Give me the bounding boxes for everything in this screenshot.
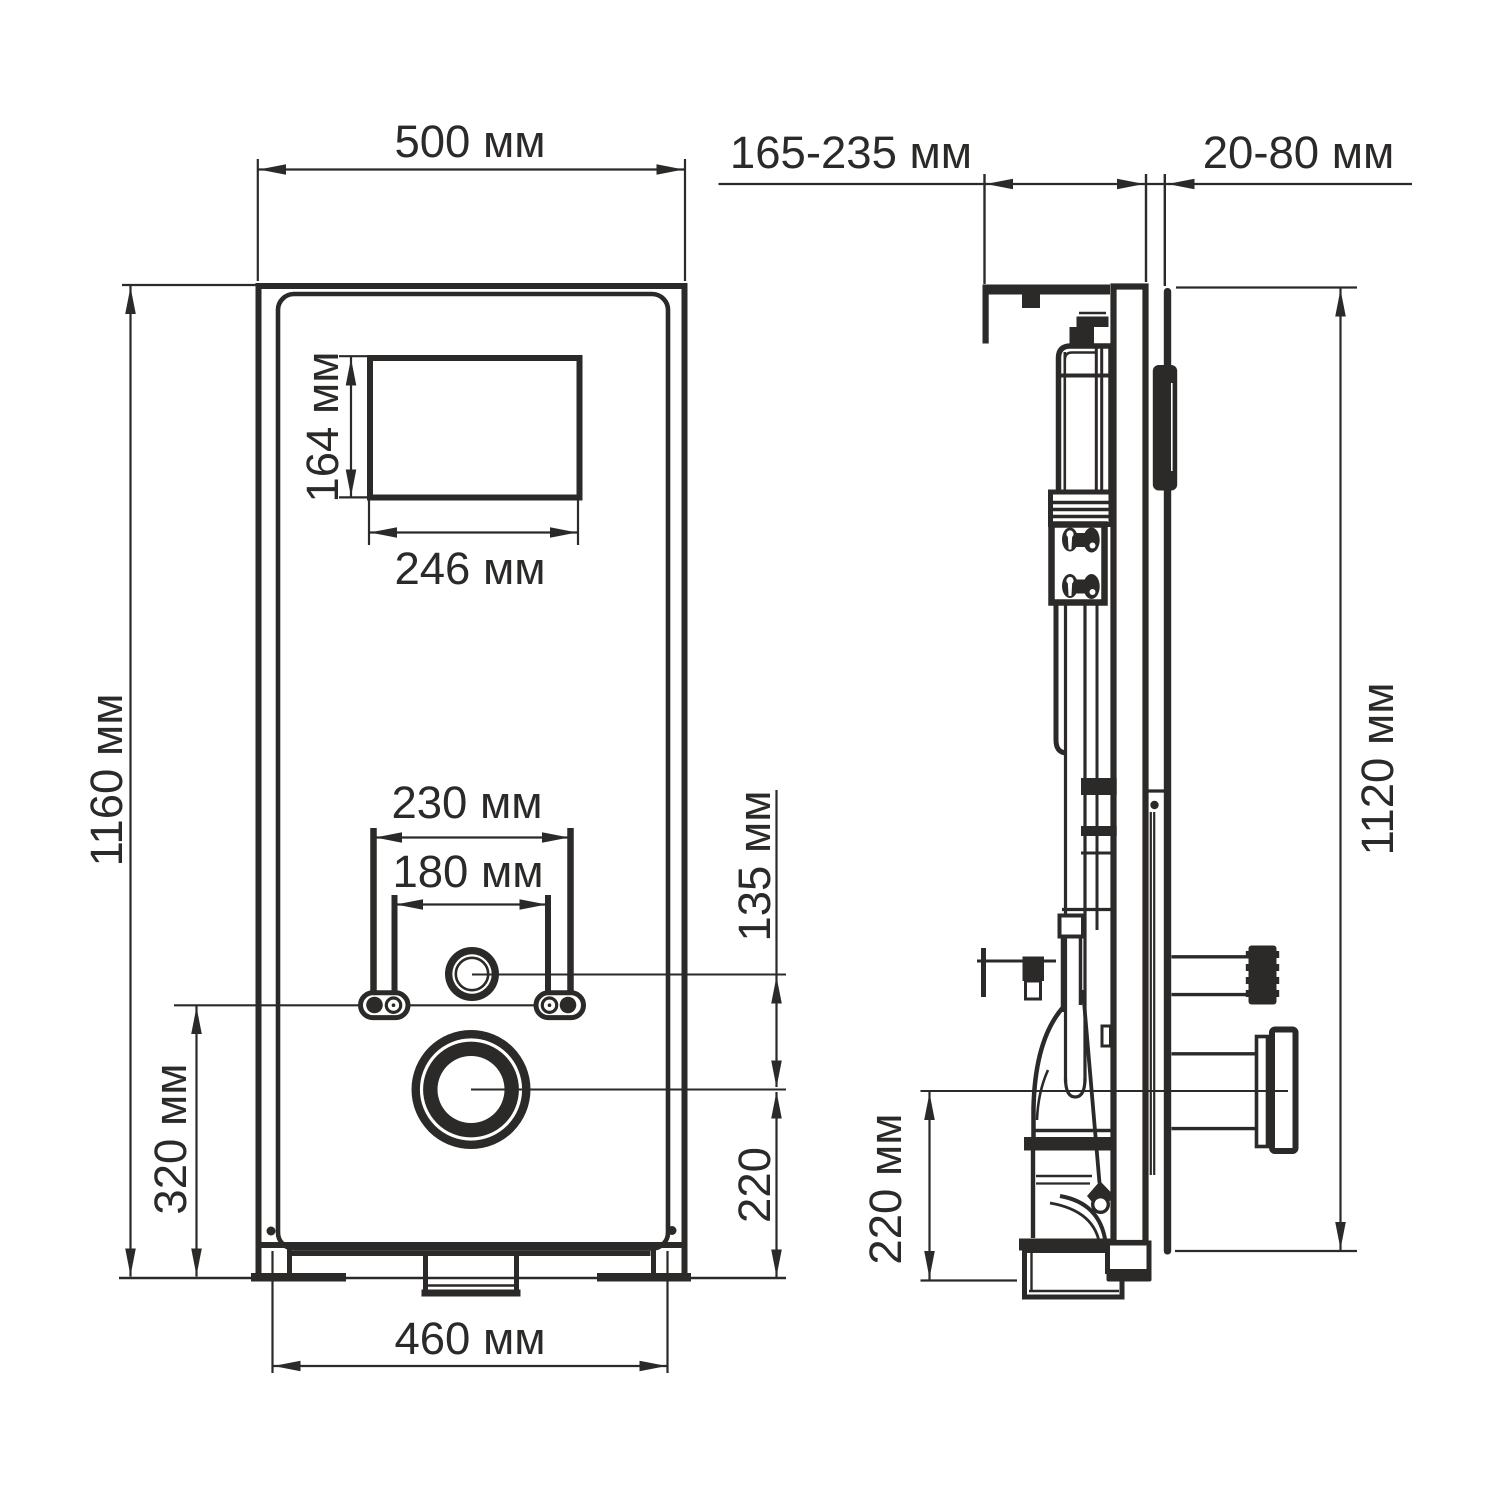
svg-text:1160 мм: 1160 мм xyxy=(81,693,132,866)
svg-text:230 мм: 230 мм xyxy=(391,777,542,828)
svg-text:164 мм: 164 мм xyxy=(297,351,348,502)
svg-text:320 мм: 320 мм xyxy=(145,1063,196,1214)
svg-text:1120 мм: 1120 мм xyxy=(1352,682,1403,855)
svg-text:220 мм: 220 мм xyxy=(860,1113,911,1264)
svg-text:180 мм: 180 мм xyxy=(392,846,543,897)
svg-text:246 мм: 246 мм xyxy=(394,543,545,594)
svg-text:460 мм: 460 мм xyxy=(394,1313,545,1364)
svg-text:220: 220 xyxy=(729,1147,780,1223)
svg-text:135 мм: 135 мм xyxy=(729,790,780,941)
svg-text:165-235 мм: 165-235 мм xyxy=(730,127,972,178)
svg-text:500 мм: 500 мм xyxy=(394,116,545,167)
svg-text:20-80 мм: 20-80 мм xyxy=(1203,127,1395,178)
